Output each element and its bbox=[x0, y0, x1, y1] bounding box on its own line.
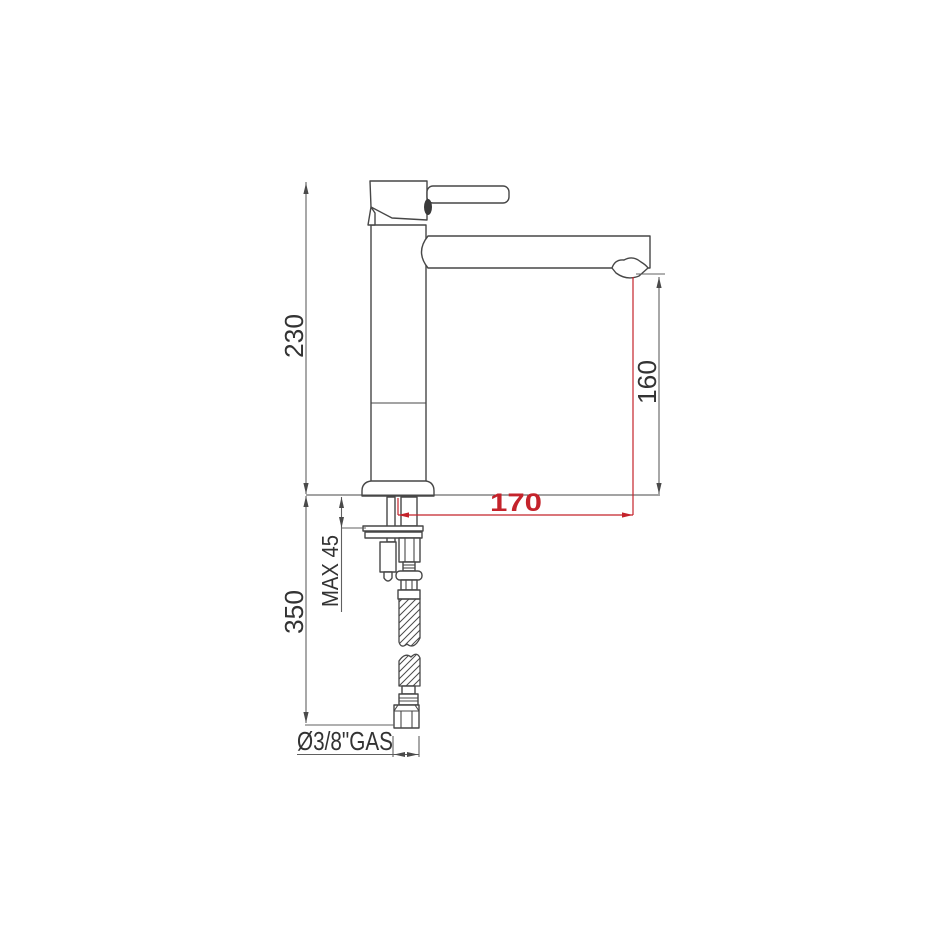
supply-tube bbox=[401, 497, 417, 526]
arrow-up-icon bbox=[303, 183, 308, 194]
mounting-washer bbox=[365, 532, 422, 538]
dim-spout-reach-170: 170 bbox=[398, 277, 633, 518]
hose-end-rings bbox=[399, 694, 418, 705]
technical-drawing-canvas: 230 350 MAX 45 160 170 bbox=[0, 0, 950, 950]
dim-label-spout-height: 160 bbox=[632, 360, 662, 404]
cartridge-head bbox=[370, 181, 427, 220]
dim-label-hose-connection: Ø3/8"GAS bbox=[297, 726, 393, 756]
dim-label-under-counter: 350 bbox=[279, 590, 309, 634]
lever-handle bbox=[427, 186, 509, 203]
mounting-stud-nut bbox=[380, 542, 396, 572]
arrow-up-icon bbox=[303, 496, 308, 507]
arrow-down-icon bbox=[303, 712, 308, 723]
hose-collar bbox=[396, 571, 422, 580]
hose-end-neck bbox=[402, 686, 415, 694]
mounting-plate bbox=[363, 526, 423, 531]
arrow-down-icon bbox=[303, 483, 308, 494]
dim-max-counter-45: MAX 45 bbox=[317, 497, 366, 612]
flex-hose-lower bbox=[399, 654, 420, 686]
arrow-down-icon bbox=[656, 483, 661, 494]
faucet-base bbox=[362, 481, 434, 496]
mounting-stud-tip bbox=[384, 572, 392, 581]
hose-crimp-sleeve bbox=[398, 590, 420, 599]
dim-total-height-230: 230 bbox=[279, 182, 309, 494]
dim-label-spout-reach: 170 bbox=[490, 489, 542, 517]
flex-hose-upper bbox=[399, 599, 420, 646]
hose-coupling bbox=[403, 562, 415, 571]
arrow-down-icon bbox=[339, 517, 344, 528]
hose-neck bbox=[401, 580, 417, 590]
dim-label-total-height: 230 bbox=[279, 314, 309, 358]
hex-nut bbox=[394, 705, 419, 728]
faucet-outline bbox=[362, 181, 650, 496]
faucet-body-column bbox=[371, 225, 426, 482]
cartridge-head-tip bbox=[368, 207, 375, 225]
lever-pivot bbox=[425, 200, 432, 215]
arrow-left-icon bbox=[394, 752, 405, 757]
dim-label-max-counter: MAX 45 bbox=[317, 535, 343, 607]
dim-spout-height-160: 160 bbox=[632, 274, 665, 494]
arrow-right-icon bbox=[622, 512, 633, 517]
arrow-up-icon bbox=[339, 497, 344, 508]
under-counter-assembly bbox=[363, 497, 423, 728]
valve-block bbox=[399, 538, 420, 562]
arrow-up-icon bbox=[656, 277, 661, 288]
dim-hose-connection: Ø3/8"GAS bbox=[297, 726, 419, 757]
faucet-diagram-svg: 230 350 MAX 45 160 170 bbox=[0, 0, 950, 950]
arrow-right-icon bbox=[407, 752, 418, 757]
